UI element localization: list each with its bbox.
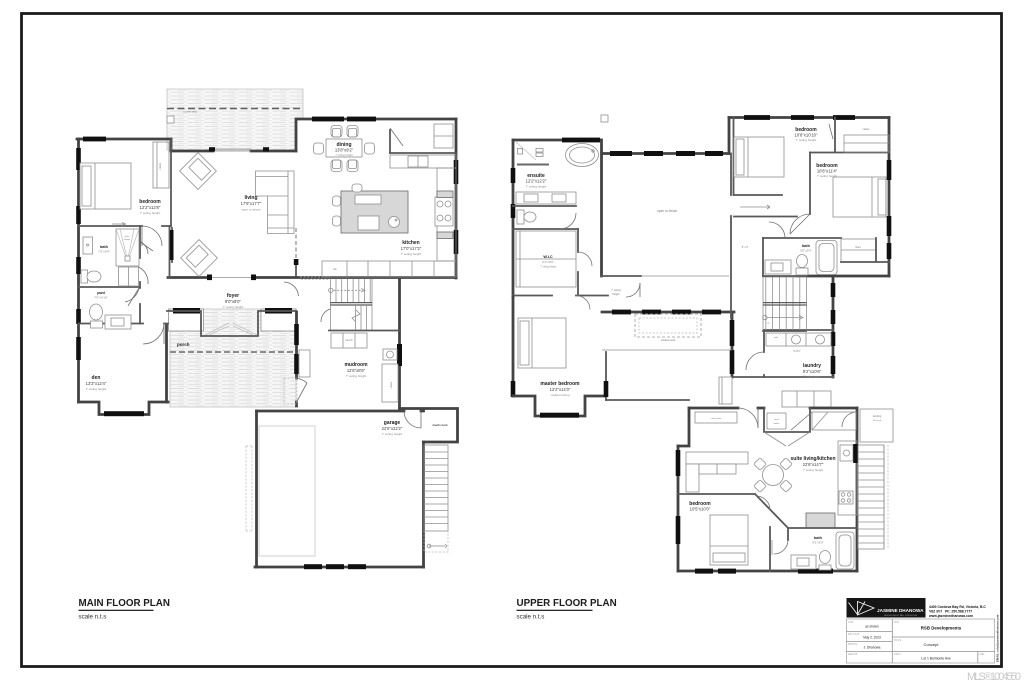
svg-text:date issued: date issued <box>848 633 860 636</box>
svg-text:MLS®1004550: MLS®1004550 <box>967 671 1021 682</box>
svg-text:linen: linen <box>855 245 861 249</box>
svg-text:as shown: as shown <box>865 625 879 629</box>
svg-text:scale n.t.s: scale n.t.s <box>517 614 545 621</box>
svg-text:MAIN FLOOR PLAN: MAIN FLOOR PLAN <box>79 598 170 609</box>
svg-text:7' ceilng height: 7' ceilng height <box>335 153 353 157</box>
svg-text:4400 Cordova Bay Rd, Victoria,: 4400 Cordova Bay Rd, Victoria, B.C <box>929 605 986 609</box>
svg-text:bath: bath <box>814 536 823 540</box>
svg-text:7' ceilng height: 7' ceilng height <box>796 138 817 142</box>
svg-text:bath: bath <box>802 244 811 248</box>
svg-text:8'0"x8'0": 8'0"x8'0" <box>225 299 241 304</box>
svg-text:descrip.: descrip. <box>894 639 902 642</box>
svg-text:7' ceilng height: 7' ceilng height <box>803 468 824 472</box>
svg-text:RSB Developments: RSB Developments <box>921 626 962 631</box>
svg-text:glass: glass <box>125 236 130 238</box>
svg-text:project: project <box>894 653 901 656</box>
svg-text:covered deck: covered deck <box>183 111 198 114</box>
svg-text:pwd: pwd <box>97 291 105 295</box>
svg-text:dw: dw <box>333 267 336 271</box>
svg-text:below: below <box>774 423 780 425</box>
svg-text:Concept: Concept <box>924 642 940 647</box>
svg-text:9'-6½": 9'-6½" <box>793 349 800 353</box>
svg-text:May 2, 2023: May 2, 2023 <box>863 636 881 640</box>
svg-text:7' ceilng height: 7' ceilng height <box>803 375 821 379</box>
svg-text:7' ceilng height: 7' ceilng height <box>382 432 403 436</box>
svg-text:coat closet: coat closet <box>711 417 722 420</box>
svg-text:7' ceilng height: 7' ceilng height <box>223 305 244 309</box>
svg-text:10'6"x11'4": 10'6"x11'4" <box>817 169 838 174</box>
svg-text:window seat: window seat <box>661 338 676 342</box>
svg-text:height: height <box>612 292 619 296</box>
svg-text:7' ceilng height: 7' ceilng height <box>140 211 161 215</box>
svg-text:12'2"x12'2": 12'2"x12'2" <box>526 179 547 184</box>
svg-text:100 sq ft: 100 sq ft <box>873 419 882 422</box>
svg-text:open to above: open to above <box>241 208 261 212</box>
svg-text:10'8"x10'10": 10'8"x10'10" <box>795 133 818 138</box>
svg-text:RESIDENTIAL DESIGN: RESIDENTIAL DESIGN <box>884 614 918 617</box>
svg-text:12'6"x8'6": 12'6"x8'6" <box>347 368 366 373</box>
svg-text:UPPER FLOOR PLAN: UPPER FLOOR PLAN <box>517 598 617 609</box>
svg-text:7' ceilng height: 7' ceilng height <box>401 252 422 256</box>
svg-text:12'2"x12'8": 12'2"x12'8" <box>140 205 161 210</box>
svg-text:9'0"x5'0": 9'0"x5'0" <box>800 249 812 253</box>
svg-text:13'3"x12'4": 13'3"x12'4" <box>86 381 107 386</box>
svg-text:www.jasminedhanowa.com: www.jasminedhanowa.com <box>928 614 973 618</box>
svg-text:W.I.C: W.I.C <box>543 255 553 259</box>
svg-text:13'8"x9'2": 13'8"x9'2" <box>335 148 354 153</box>
svg-text:vaulted ceilng: vaulted ceilng <box>551 393 570 397</box>
svg-text:J. Dhanowa: J. Dhanowa <box>864 646 881 650</box>
svg-text:approved: approved <box>848 653 858 656</box>
svg-text:JASMINE DHANOWA: JASMINE DHANOWA <box>877 608 924 613</box>
svg-text:17'0"x17'2": 17'0"x17'2" <box>401 246 422 251</box>
svg-text:EMAIL: info@jasminedhanowa.com: EMAIL: info@jasminedhanowa.com <box>996 614 1000 662</box>
svg-text:porch: porch <box>177 342 190 347</box>
svg-text:scale n.t.s: scale n.t.s <box>79 614 107 621</box>
svg-text:12'2"x14'3": 12'2"x14'3" <box>550 387 571 392</box>
svg-text:9'1"x9'0": 9'1"x9'0" <box>542 260 554 264</box>
svg-text:closet: closet <box>389 381 393 388</box>
svg-text:7' ceilng height: 7' ceilng height <box>86 387 107 391</box>
svg-text:9'2"x10'6": 9'2"x10'6" <box>803 369 822 374</box>
svg-text:17'9"x17'7": 17'9"x17'7" <box>241 201 262 206</box>
svg-text:7' ceilng height: 7' ceilng height <box>526 185 547 189</box>
svg-text:client: client <box>894 621 899 624</box>
svg-text:closet: closet <box>158 162 162 169</box>
svg-text:drawn by: drawn by <box>848 643 858 646</box>
svg-text:7' ceilng height: 7' ceilng height <box>346 374 367 378</box>
svg-text:bath: bath <box>100 245 109 249</box>
svg-text:scale: scale <box>848 622 854 624</box>
svg-text:V8Z 3V7 Ph: 250.588.7777: V8Z 3V7 Ph: 250.588.7777 <box>929 610 972 614</box>
svg-text:open to below: open to below <box>657 209 678 213</box>
svg-text:7'5"x4'10": 7'5"x4'10" <box>94 296 108 300</box>
svg-text:10'5"x10'0": 10'5"x10'0" <box>690 507 711 512</box>
svg-text:landing: landing <box>873 414 882 418</box>
svg-text:7' ceilng height: 7' ceilng height <box>817 174 838 178</box>
svg-text:bench: bench <box>345 338 353 342</box>
svg-text:closet: closet <box>863 127 870 131</box>
svg-text:7'5"x9'8": 7'5"x9'8" <box>98 250 110 254</box>
svg-text:7' ceilng height: 7' ceilng height <box>540 266 556 269</box>
svg-text:page: page <box>980 654 986 656</box>
svg-text:22'6"x22'2": 22'6"x22'2" <box>382 426 403 431</box>
svg-text:5' x 5': 5' x 5' <box>742 245 749 249</box>
svg-text:shower: shower <box>124 239 131 241</box>
svg-text:stairs: stairs <box>774 418 780 421</box>
svg-text:mech room: mech room <box>432 423 448 427</box>
svg-text:9'5"x5'0": 9'5"x5'0" <box>812 541 824 545</box>
svg-text:Lot 1 Belmonte Ave: Lot 1 Belmonte Ave <box>921 657 950 661</box>
svg-text:7' ceilng: 7' ceilng <box>611 288 621 292</box>
svg-text:22'6"x14'7": 22'6"x14'7" <box>803 462 824 467</box>
